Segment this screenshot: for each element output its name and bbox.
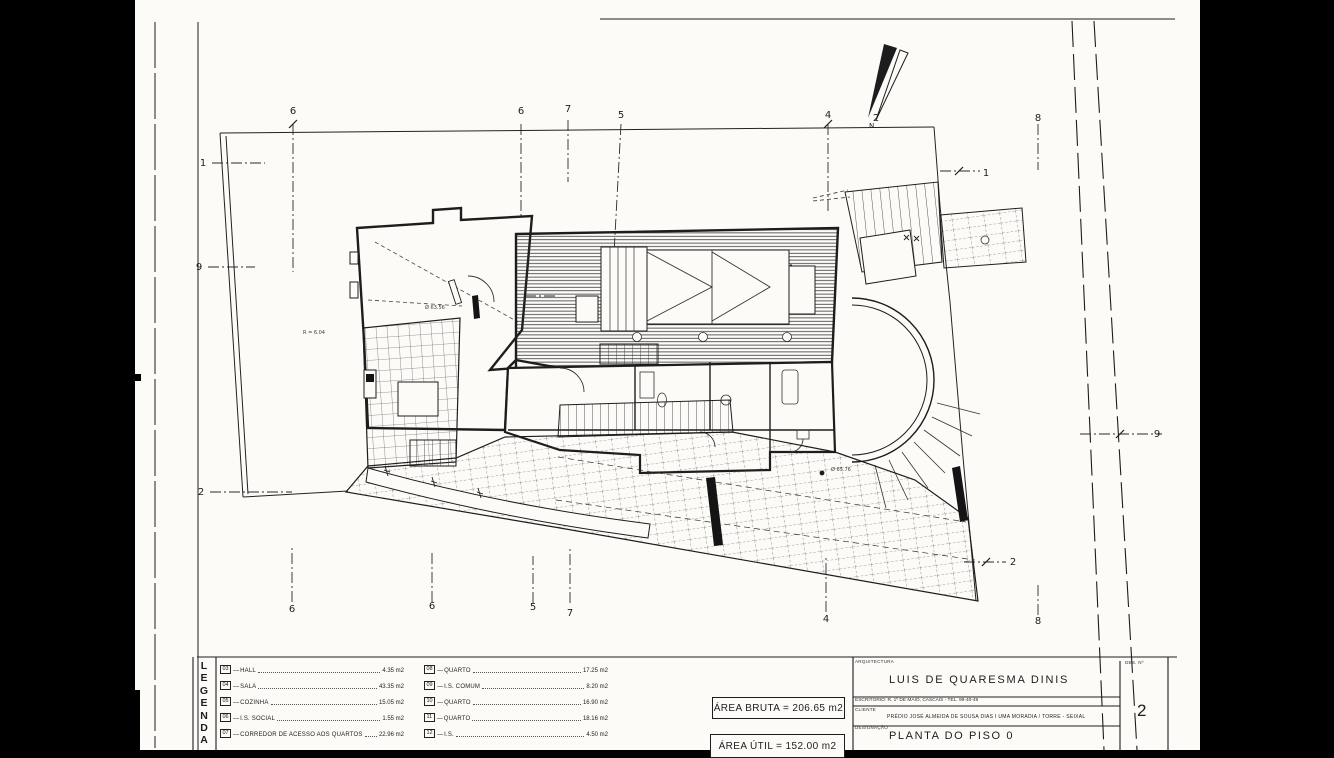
legend-item: 09—I.S. COMUM8.20 m2	[424, 679, 608, 690]
lg-code: 04	[220, 681, 231, 690]
grid-marker-number: 4	[823, 614, 829, 625]
client-label: CLIENTE	[855, 707, 876, 712]
grid-marker-number: 6	[518, 106, 524, 117]
lg-val: 1.55 m2	[382, 716, 404, 722]
grid-marker-number: 5	[618, 110, 624, 121]
legend-item: 07—CORREDOR DE ACESSO AOS QUARTOS22.96 m…	[220, 727, 404, 738]
lg-code: 06	[220, 713, 231, 722]
lg-lead	[258, 688, 377, 689]
grid-marker-number: 1	[983, 168, 989, 179]
office-line: ESCRITÓRIO: R. 1º DE MAIO, CASCAIS - TEL…	[855, 698, 978, 703]
lg-val: 15.05 m2	[379, 700, 404, 706]
lg-lead	[277, 720, 380, 721]
lg-dash: —	[233, 684, 239, 690]
lg-code: 07	[220, 729, 231, 738]
entry-steps	[813, 182, 1026, 284]
grid-marker-number: 6	[290, 106, 296, 117]
lg-dash: —	[437, 684, 443, 690]
designation-label: DESIGNAÇÃO	[855, 725, 888, 730]
legend-header-letter: D	[196, 722, 212, 734]
lg-code: 11	[424, 713, 435, 722]
lg-code: 12	[424, 729, 435, 738]
sheet-number: 2	[1137, 701, 1146, 721]
lg-name: SALA	[240, 684, 256, 690]
lg-val: 43.35 m2	[379, 684, 404, 690]
film-notch	[135, 690, 140, 750]
drawing-title: PLANTA DO PISO 0	[889, 730, 1014, 742]
grid-marker-number: 2	[198, 487, 204, 498]
lg-dash: —	[233, 668, 239, 674]
lg-val: 18.16 m2	[583, 716, 608, 722]
hatched-roof-deck	[516, 228, 838, 368]
lg-val: 22.96 m2	[379, 732, 404, 738]
grid-marker-number: 8	[1035, 113, 1041, 124]
lg-name: QUARTO	[444, 716, 471, 722]
film-notch	[135, 374, 141, 381]
lg-dash: —	[437, 700, 443, 706]
screenshot-root: { "legend": { "header_letters": ["L","E"…	[0, 0, 1334, 750]
grid-marker-number: 4	[825, 110, 831, 121]
grid-marker-number: 2	[873, 113, 879, 124]
lg-val: 4.50 m2	[586, 732, 608, 738]
grid-marker-number: 7	[565, 104, 571, 115]
client-line: PRÉDIO JOSÉ ALMEIDA DE SOUSA DIAS I UMA …	[887, 714, 1086, 720]
lg-code: 09	[424, 681, 435, 690]
lg-lead	[258, 672, 380, 673]
grid-marker-number: 1	[200, 158, 206, 169]
area-bruta-box: ÁREA BRUTA = 206.65 m2	[712, 697, 845, 719]
legend-header-letter: N	[196, 710, 212, 722]
grid-marker-number: 5	[530, 602, 536, 613]
lg-lead	[473, 672, 581, 673]
lg-val: 16.90 m2	[583, 700, 608, 706]
lg-name: I.S.	[444, 732, 454, 738]
lg-dash: —	[437, 716, 443, 722]
lg-val: 8.20 m2	[586, 684, 608, 690]
grid-marker-number: 9	[1154, 429, 1160, 440]
lg-lead	[456, 736, 584, 737]
legend-item: 03—HALL4.35 m2	[220, 663, 404, 674]
lg-val: 4.35 m2	[382, 668, 404, 674]
sheet-number-label: DES. Nº	[1125, 660, 1144, 665]
legend-item: 08—QUARTO17.25 m2	[424, 663, 608, 674]
lg-name: COZINHA	[240, 700, 268, 706]
lg-dash: —	[437, 668, 443, 674]
lg-name: CORREDOR DE ACESSO AOS QUARTOS	[240, 732, 362, 738]
grid-marker-number: 6	[289, 604, 295, 615]
legend-header-letter: E	[196, 697, 212, 709]
legend-column-right: 08—QUARTO17.25 m209—I.S. COMUM8.20 m210—…	[424, 663, 608, 743]
area-bruta-text: ÁREA BRUTA = 206.65 m2	[714, 703, 844, 714]
title-block: ARQUITECTURA LUIS DE QUARESMA DINIS ESCR…	[853, 657, 1168, 750]
legend-item: 04—SALA43.35 m2	[220, 679, 404, 690]
legend-item: 06—I.S. SOCIAL1.55 m2	[220, 711, 404, 722]
lg-lead	[472, 720, 581, 721]
lg-code: 05	[220, 697, 231, 706]
lg-dash: —	[437, 732, 443, 738]
legend-header-letter: A	[196, 734, 212, 746]
legend-header-letter: L	[196, 660, 212, 672]
lg-name: QUARTO	[444, 700, 471, 706]
lg-name: HALL	[240, 668, 256, 674]
grid-marker-number: 6	[429, 601, 435, 612]
title-block-section-label: ARQUITECTURA	[855, 659, 894, 664]
grid-marker-number: 2	[1010, 557, 1016, 568]
lg-name: QUARTO	[444, 668, 471, 674]
legend-item: 05—COZINHA15.05 m2	[220, 695, 404, 706]
lg-lead	[271, 704, 377, 705]
legend-header-letter: G	[196, 685, 212, 697]
legend-item: 10—QUARTO16.90 m2	[424, 695, 608, 706]
plan-annotation: R = 6.04	[303, 330, 325, 336]
lg-dash: —	[233, 732, 239, 738]
legend-column-left: 03—HALL4.35 m204—SALA43.35 m205—COZINHA1…	[220, 663, 404, 743]
lg-lead	[365, 736, 377, 737]
plan-annotation: Ø 63.56	[425, 304, 445, 311]
lg-lead	[473, 704, 581, 705]
legend-item: 11—QUARTO18.16 m2	[424, 711, 608, 722]
lg-dash: —	[233, 716, 239, 722]
grid-marker-number: 8	[1035, 616, 1041, 627]
area-util-box: ÁREA ÚTIL = 152.00 m2	[710, 734, 845, 758]
lg-dash: —	[233, 700, 239, 706]
lg-code: 03	[220, 665, 231, 674]
lg-code: 08	[424, 665, 435, 674]
legend-header-letter: E	[196, 672, 212, 684]
lg-name: I.S. COMUM	[444, 684, 480, 690]
tiled-patio	[363, 318, 460, 468]
legend-item: 12—I.S.4.50 m2	[424, 727, 608, 738]
lg-lead	[482, 688, 584, 689]
grid-marker-number: 9	[196, 262, 202, 273]
lg-code: 10	[424, 697, 435, 706]
grid-marker-number: 7	[567, 608, 573, 619]
legend-header: LEGENDA	[196, 660, 212, 747]
lg-val: 17.25 m2	[583, 668, 608, 674]
architect-name: LUIS DE QUARESMA DINIS	[889, 674, 1069, 686]
floor-plan-drawing: N	[0, 0, 1334, 750]
lg-name: I.S. SOCIAL	[240, 716, 275, 722]
plan-annotation: Ø 65.76	[831, 466, 851, 473]
